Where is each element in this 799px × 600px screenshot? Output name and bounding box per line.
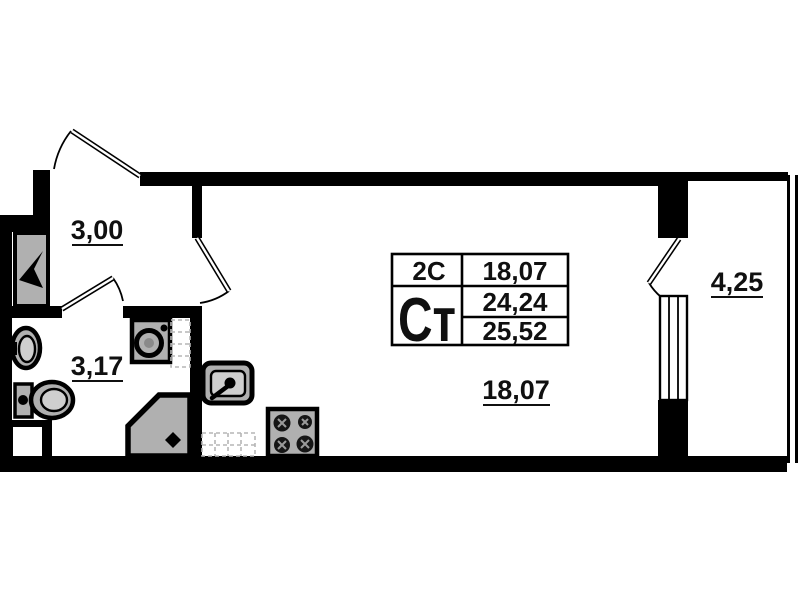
toilet-flush-icon bbox=[18, 395, 28, 405]
toilet bbox=[15, 382, 73, 418]
balcony-window bbox=[660, 296, 687, 400]
washbasin-tap-icon bbox=[11, 342, 17, 355]
kitchen-sink bbox=[203, 363, 252, 403]
apartment-type-cell: Ст bbox=[398, 286, 456, 355]
left-wall bbox=[0, 215, 12, 456]
bathroom-door-leaf-inner bbox=[62, 278, 113, 309]
room-door-arc bbox=[200, 291, 229, 303]
washing-machine bbox=[132, 320, 170, 362]
entrance-door-arc bbox=[54, 131, 71, 169]
door-stub-upper bbox=[192, 186, 202, 238]
balcony-area-label: 4,25 bbox=[711, 267, 764, 297]
balcony-door-leaf-inner bbox=[649, 239, 679, 283]
floor-plan: 2С Ст 18,07 24,24 25,52 3,00 3,17 18,07 … bbox=[0, 0, 799, 600]
area-no-balcony-cell: 24,24 bbox=[482, 287, 548, 317]
hallway-area-label: 3,00 bbox=[71, 215, 124, 245]
apartment-type-short-cell: 2С bbox=[412, 256, 445, 286]
total-area-cell: 25,52 bbox=[482, 316, 547, 346]
main-room-area-label: 18,07 bbox=[482, 375, 550, 405]
living-area-cell: 18,07 bbox=[482, 256, 547, 286]
counter-dashed-bottom bbox=[202, 433, 255, 456]
info-table: 2С Ст 18,07 24,24 25,52 bbox=[392, 254, 568, 355]
counter-dashed-side bbox=[171, 320, 190, 367]
washer-drum-icon bbox=[144, 338, 154, 348]
balcony-pier-lower bbox=[658, 400, 688, 458]
floor-plan-drawing: 2С Ст 18,07 24,24 25,52 3,00 3,17 18,07 … bbox=[0, 0, 799, 600]
duct-niche bbox=[13, 427, 42, 456]
top-wall bbox=[140, 172, 688, 186]
washer-knob-icon bbox=[161, 325, 168, 332]
bathroom-area-label: 3,17 bbox=[71, 351, 124, 381]
shower-tray bbox=[128, 395, 190, 456]
bathroom-door-arc bbox=[113, 278, 123, 301]
balcony-top-wall bbox=[688, 172, 788, 181]
balcony-parapet-inner bbox=[795, 175, 798, 463]
washbasin bbox=[11, 328, 40, 368]
entrance-door-leaf-inner bbox=[72, 131, 140, 176]
room-door-leaf-inner bbox=[197, 238, 229, 291]
wardrobe bbox=[15, 233, 48, 306]
balcony-parapet-outer bbox=[787, 175, 790, 463]
stove bbox=[268, 409, 317, 456]
balcony-pier-upper bbox=[658, 184, 688, 238]
bottom-wall bbox=[0, 456, 787, 472]
fixtures bbox=[11, 233, 317, 456]
